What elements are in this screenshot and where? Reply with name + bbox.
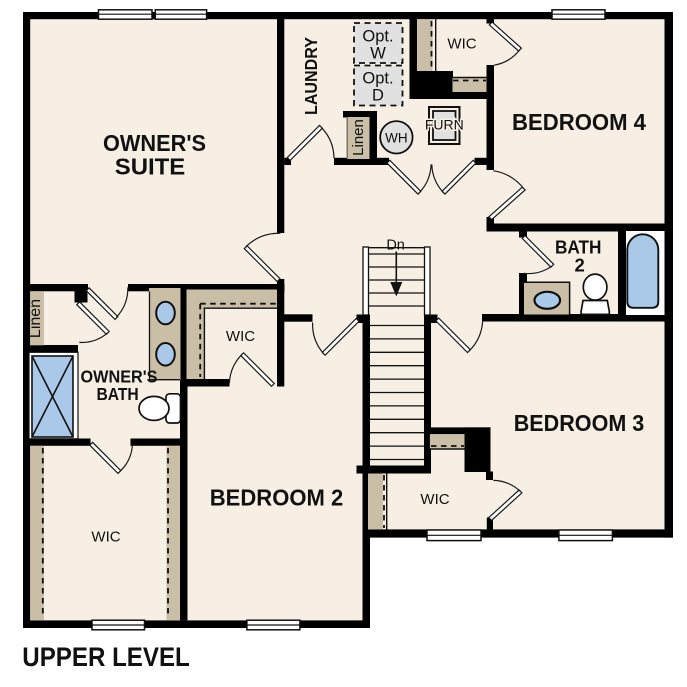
svg-text:LAUNDRY: LAUNDRY bbox=[301, 37, 321, 115]
svg-text:FURN: FURN bbox=[425, 117, 464, 133]
svg-text:WIC: WIC bbox=[91, 529, 120, 546]
svg-text:OWNER'S: OWNER'S bbox=[103, 130, 206, 156]
svg-text:W: W bbox=[370, 45, 386, 63]
svg-text:WIC: WIC bbox=[226, 328, 255, 345]
svg-text:2: 2 bbox=[574, 255, 584, 276]
svg-text:Opt.: Opt. bbox=[362, 28, 393, 46]
svg-text:BEDROOM 3: BEDROOM 3 bbox=[514, 410, 645, 436]
svg-text:WIC: WIC bbox=[420, 491, 449, 508]
svg-text:SUITE: SUITE bbox=[115, 154, 186, 180]
svg-text:BEDROOM 2: BEDROOM 2 bbox=[210, 485, 344, 511]
svg-text:WH: WH bbox=[385, 130, 408, 145]
svg-text:Linen: Linen bbox=[350, 119, 367, 156]
svg-text:Linen: Linen bbox=[27, 299, 44, 338]
svg-text:D: D bbox=[372, 87, 384, 105]
svg-text:WIC: WIC bbox=[447, 36, 476, 53]
svg-text:Dn: Dn bbox=[386, 238, 405, 254]
svg-text:UPPER LEVEL: UPPER LEVEL bbox=[22, 642, 190, 672]
svg-text:Opt.: Opt. bbox=[362, 70, 393, 88]
svg-text:BEDROOM 4: BEDROOM 4 bbox=[512, 109, 646, 135]
svg-text:BATH: BATH bbox=[96, 384, 138, 404]
